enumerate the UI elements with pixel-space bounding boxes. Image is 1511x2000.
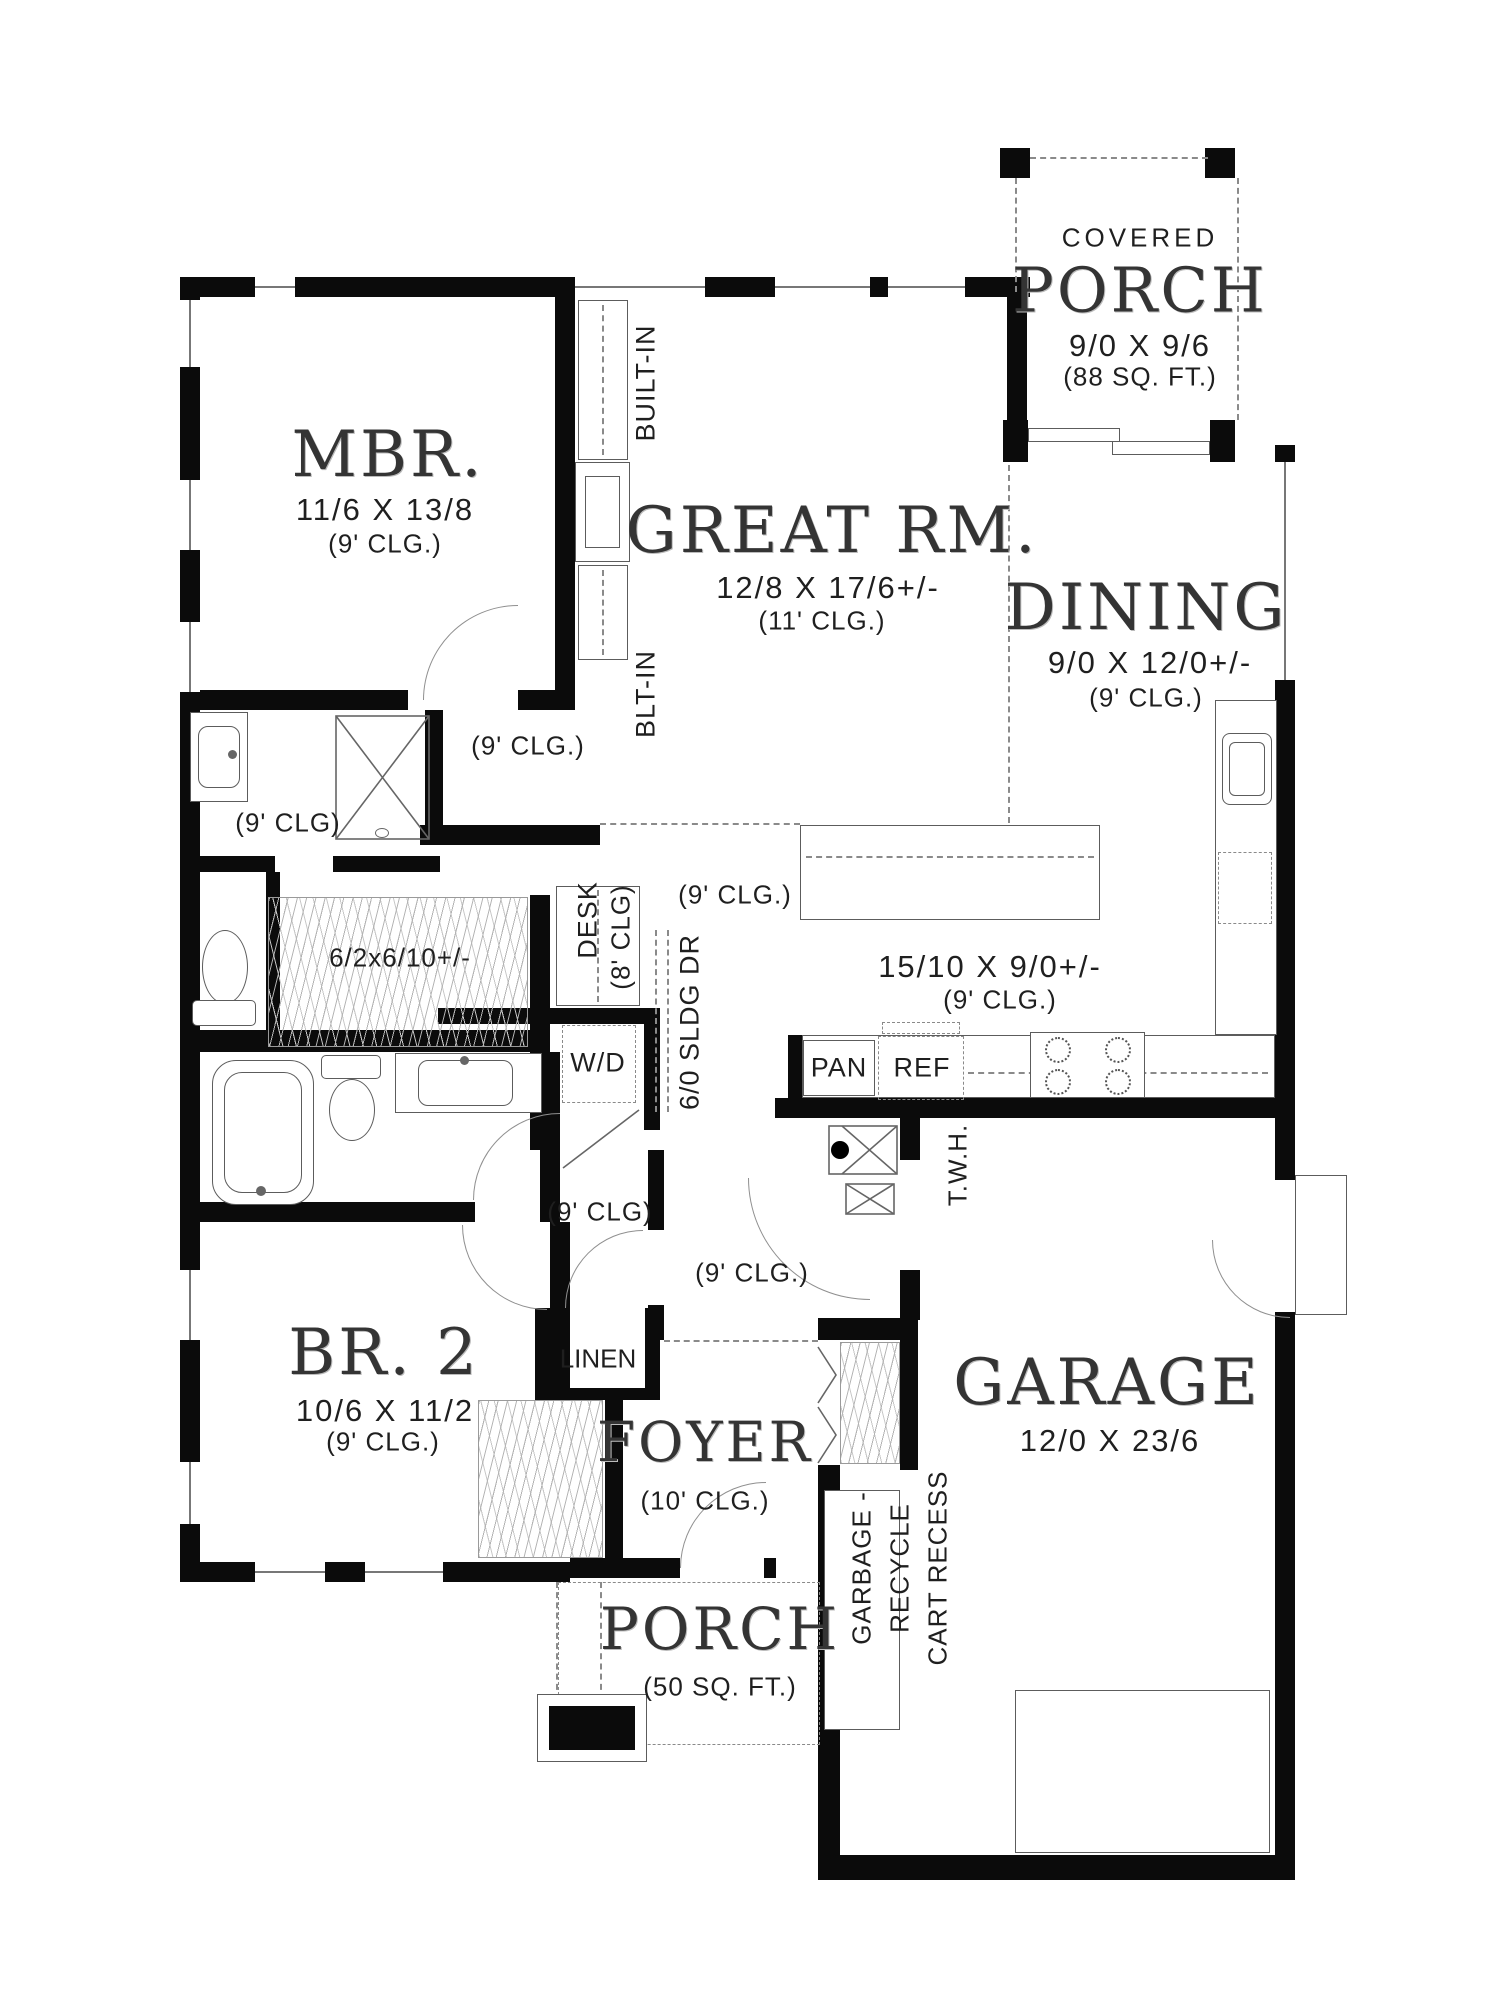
kitchen-clg: (9' CLG.) <box>943 985 1057 1016</box>
wall-mbr-east <box>555 297 575 710</box>
water-heater-label: T.W.H. <box>943 1124 974 1207</box>
kitchen-sink-inner <box>1229 742 1265 796</box>
sliding-door-line <box>667 930 669 1112</box>
covered-porch-area: (88 SQ. FT.) <box>1063 362 1217 393</box>
built-in-centerline <box>602 570 604 655</box>
shower-drain <box>375 828 389 838</box>
blt-in-label: BLT-IN <box>631 650 662 738</box>
toilet-bowl <box>202 930 248 1004</box>
slider-panel <box>1028 428 1120 442</box>
window <box>575 277 705 297</box>
wd-door-leaf <box>563 1110 639 1168</box>
built-in-label: BUILT-IN <box>631 324 662 441</box>
garbage-label-2: RECYCLE <box>885 1503 916 1633</box>
great-rm-clg: (11' CLG.) <box>758 606 885 637</box>
window <box>365 1562 443 1582</box>
wall-coat-closet-east <box>900 1340 918 1470</box>
porch-post-ne <box>1205 148 1235 178</box>
window <box>180 300 200 367</box>
wall-pan-west <box>788 1035 802 1105</box>
range-burner <box>1105 1069 1131 1095</box>
window <box>255 1562 325 1582</box>
ceiling-break-hall <box>664 1340 818 1342</box>
covered-porch-name: PORCH <box>1012 254 1268 327</box>
dining-dims: 9/0 X 12/0+/- <box>1048 645 1252 681</box>
dining-post-east <box>1210 420 1235 462</box>
wall-west <box>180 277 200 1582</box>
mbr-closet-dims: 6/2x6/10+/- <box>329 943 471 974</box>
wall-garage-nw-upper <box>900 1118 920 1160</box>
porch-roof-edge-top <box>1030 157 1208 159</box>
foyer-name: FOYER <box>597 1410 813 1474</box>
porch-post-nw <box>1000 148 1030 178</box>
bath-clg-label: (9' CLG) <box>235 808 340 839</box>
br2-dims: 10/6 X 11/2 <box>296 1393 474 1429</box>
fireplace-inner <box>585 476 620 548</box>
range-burner <box>1105 1037 1131 1063</box>
shower <box>335 715 430 840</box>
water-heater-box <box>828 1125 898 1175</box>
refrigerator-top <box>882 1022 960 1034</box>
covered-porch-dims: 9/0 X 9/6 <box>1069 328 1211 364</box>
garage-name: GARAGE <box>953 1346 1261 1420</box>
kitchen-dims: 15/10 X 9/0+/- <box>878 949 1102 985</box>
sliding-door-label: 6/0 SLDG DR <box>675 934 706 1110</box>
range-burner <box>1045 1069 1071 1095</box>
door-swing-arc-mbr <box>423 605 518 700</box>
desk-label: DESK <box>573 881 604 959</box>
faucet <box>460 1056 469 1065</box>
wall-east-cap <box>1275 445 1295 462</box>
great-rm-name: GREAT RM. <box>626 494 1039 568</box>
window <box>180 1270 200 1340</box>
porch-pier <box>549 1706 635 1750</box>
mbr-clg: (9' CLG.) <box>328 529 442 560</box>
faucet <box>228 750 237 759</box>
garage-dims: 12/0 X 23/6 <box>1020 1423 1201 1459</box>
toilet-tank <box>321 1055 381 1079</box>
linen-label: LINEN <box>560 1344 637 1375</box>
range-burner <box>1045 1037 1071 1063</box>
tub-faucet <box>256 1186 266 1196</box>
wall-bath2-south <box>180 1202 475 1222</box>
foyer-clg: (10' CLG.) <box>640 1486 769 1517</box>
jamb-front-door-left <box>668 1558 680 1578</box>
wall-wd-right <box>644 1008 660 1130</box>
island-overhang <box>806 856 1094 858</box>
hall2-clg-label: (9' CLG) <box>547 1197 652 1228</box>
dining-name: DINING <box>1005 571 1288 645</box>
dishwasher-box <box>1218 852 1272 924</box>
garage-pad <box>1015 1690 1270 1853</box>
mbr-name: MBR. <box>291 418 484 492</box>
great-rm-dims: 12/8 X 17/6+/- <box>716 570 940 606</box>
washer-dryer-label: W/D <box>570 1048 625 1079</box>
porch-name: PORCH <box>600 1595 840 1663</box>
side-door-bump <box>1295 1175 1347 1315</box>
wall-east-lower <box>1275 1312 1295 1880</box>
wall-jog <box>818 1318 918 1340</box>
toilet-tank <box>192 1000 256 1026</box>
window-jamb-north <box>870 277 888 297</box>
wall-linen-bottom <box>535 1388 660 1400</box>
porch-column-line <box>556 1582 558 1700</box>
wall-linen-right <box>645 1308 660 1398</box>
garbage-label-3: CART RECESS <box>923 1471 954 1666</box>
covered-porch-label-top: COVERED <box>1062 223 1219 254</box>
pantry-label: PAN <box>811 1053 868 1084</box>
mbr-dims: 11/6 X 13/8 <box>296 492 474 528</box>
wall-linen-left <box>535 1308 550 1398</box>
slider-panel <box>1112 441 1210 455</box>
window <box>888 277 965 297</box>
bathtub-inner <box>224 1072 302 1193</box>
mudhall-clg-label: (9' CLG.) <box>695 1258 809 1289</box>
br2-clg: (9' CLG.) <box>326 1427 440 1458</box>
ceiling-break-greatrm <box>600 823 800 825</box>
door-swing-arc-bath2 <box>473 1113 560 1200</box>
toilet-bowl <box>329 1079 375 1141</box>
wall-garage-nw-lower <box>900 1270 920 1320</box>
desk-clg-label: (8' CLG) <box>606 884 637 989</box>
sliding-door-line <box>655 930 657 1112</box>
dining-clg: (9' CLG.) <box>1089 683 1203 714</box>
coat-closet-hatch <box>840 1342 900 1464</box>
bifold-door <box>816 1345 840 1465</box>
porch-area: (50 SQ. FT.) <box>643 1672 797 1703</box>
door-swing-arc-linen <box>565 1230 643 1308</box>
fridge-label: REF <box>894 1053 951 1084</box>
door-swing-arc-br2 <box>462 1225 547 1310</box>
window <box>180 480 200 550</box>
wall-hall-desk <box>420 825 600 845</box>
door-swing-arc-sidedoor <box>1212 1240 1290 1318</box>
opening-bath <box>275 856 333 872</box>
floor-plan-canvas: COVERED PORCH 9/0 X 9/6 (88 SQ. FT.) MBR… <box>0 0 1511 2000</box>
window <box>180 622 200 692</box>
garbage-label-1: GARBAGE - <box>847 1491 878 1644</box>
wall-east-upper <box>1275 680 1295 1180</box>
kitchen-island <box>800 825 1100 920</box>
hall-clg-label: (9' CLG.) <box>471 731 585 762</box>
br2-name: BR. 2 <box>288 1316 480 1390</box>
window <box>775 277 870 297</box>
dining-post-west <box>1003 420 1028 462</box>
built-in-centerline <box>602 305 604 455</box>
wall-kitchen-south <box>775 1098 1275 1118</box>
window <box>180 1462 200 1524</box>
nook-clg-label: (9' CLG.) <box>678 880 792 911</box>
wall-foyer-south <box>570 1558 670 1578</box>
br2-closet-hatch <box>478 1400 603 1558</box>
sink <box>418 1060 513 1106</box>
window <box>255 277 295 297</box>
wall-garage-south <box>840 1855 1295 1880</box>
